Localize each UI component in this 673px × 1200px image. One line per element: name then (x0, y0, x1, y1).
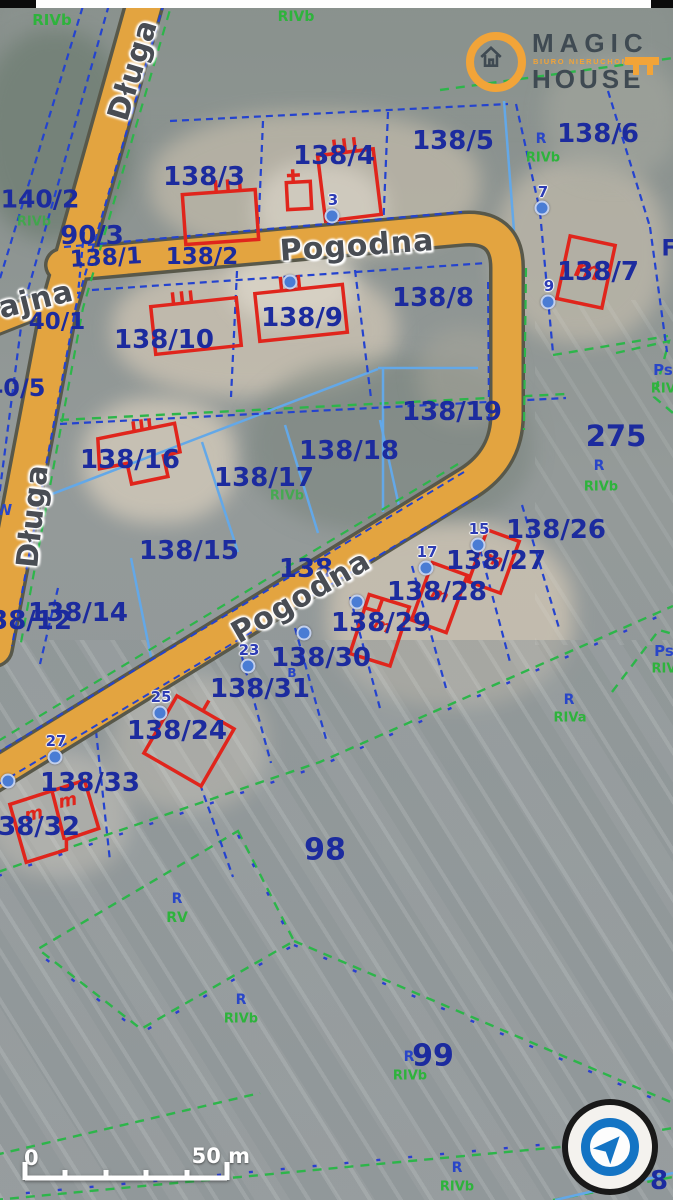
street-label: Pogodna (279, 223, 436, 269)
scale-bar-ruler (22, 1130, 234, 1188)
house-icon (478, 44, 504, 75)
status-bar (0, 0, 673, 8)
key-bit-icon (625, 55, 661, 84)
status-bar-corner (0, 0, 36, 8)
navigation-arrow-icon (581, 1118, 639, 1176)
cadastral-map-screenshot: m m m m (0, 0, 673, 1200)
magic-house-logo: MAGIC BIURO NIERUCHOMOŚCI HOUSE (462, 26, 667, 92)
street-label: Pogodna (225, 543, 377, 651)
scale-bar: 0 50 m (22, 1130, 234, 1188)
status-bar-corner (651, 0, 673, 8)
street-label: Długa (101, 15, 165, 125)
street-labels-layer: DługaPogodnaajnaDługaPogodna (0, 0, 673, 1200)
compass-button[interactable] (562, 1099, 658, 1195)
street-label: Długa (10, 462, 56, 569)
street-label: ajna (0, 274, 77, 326)
